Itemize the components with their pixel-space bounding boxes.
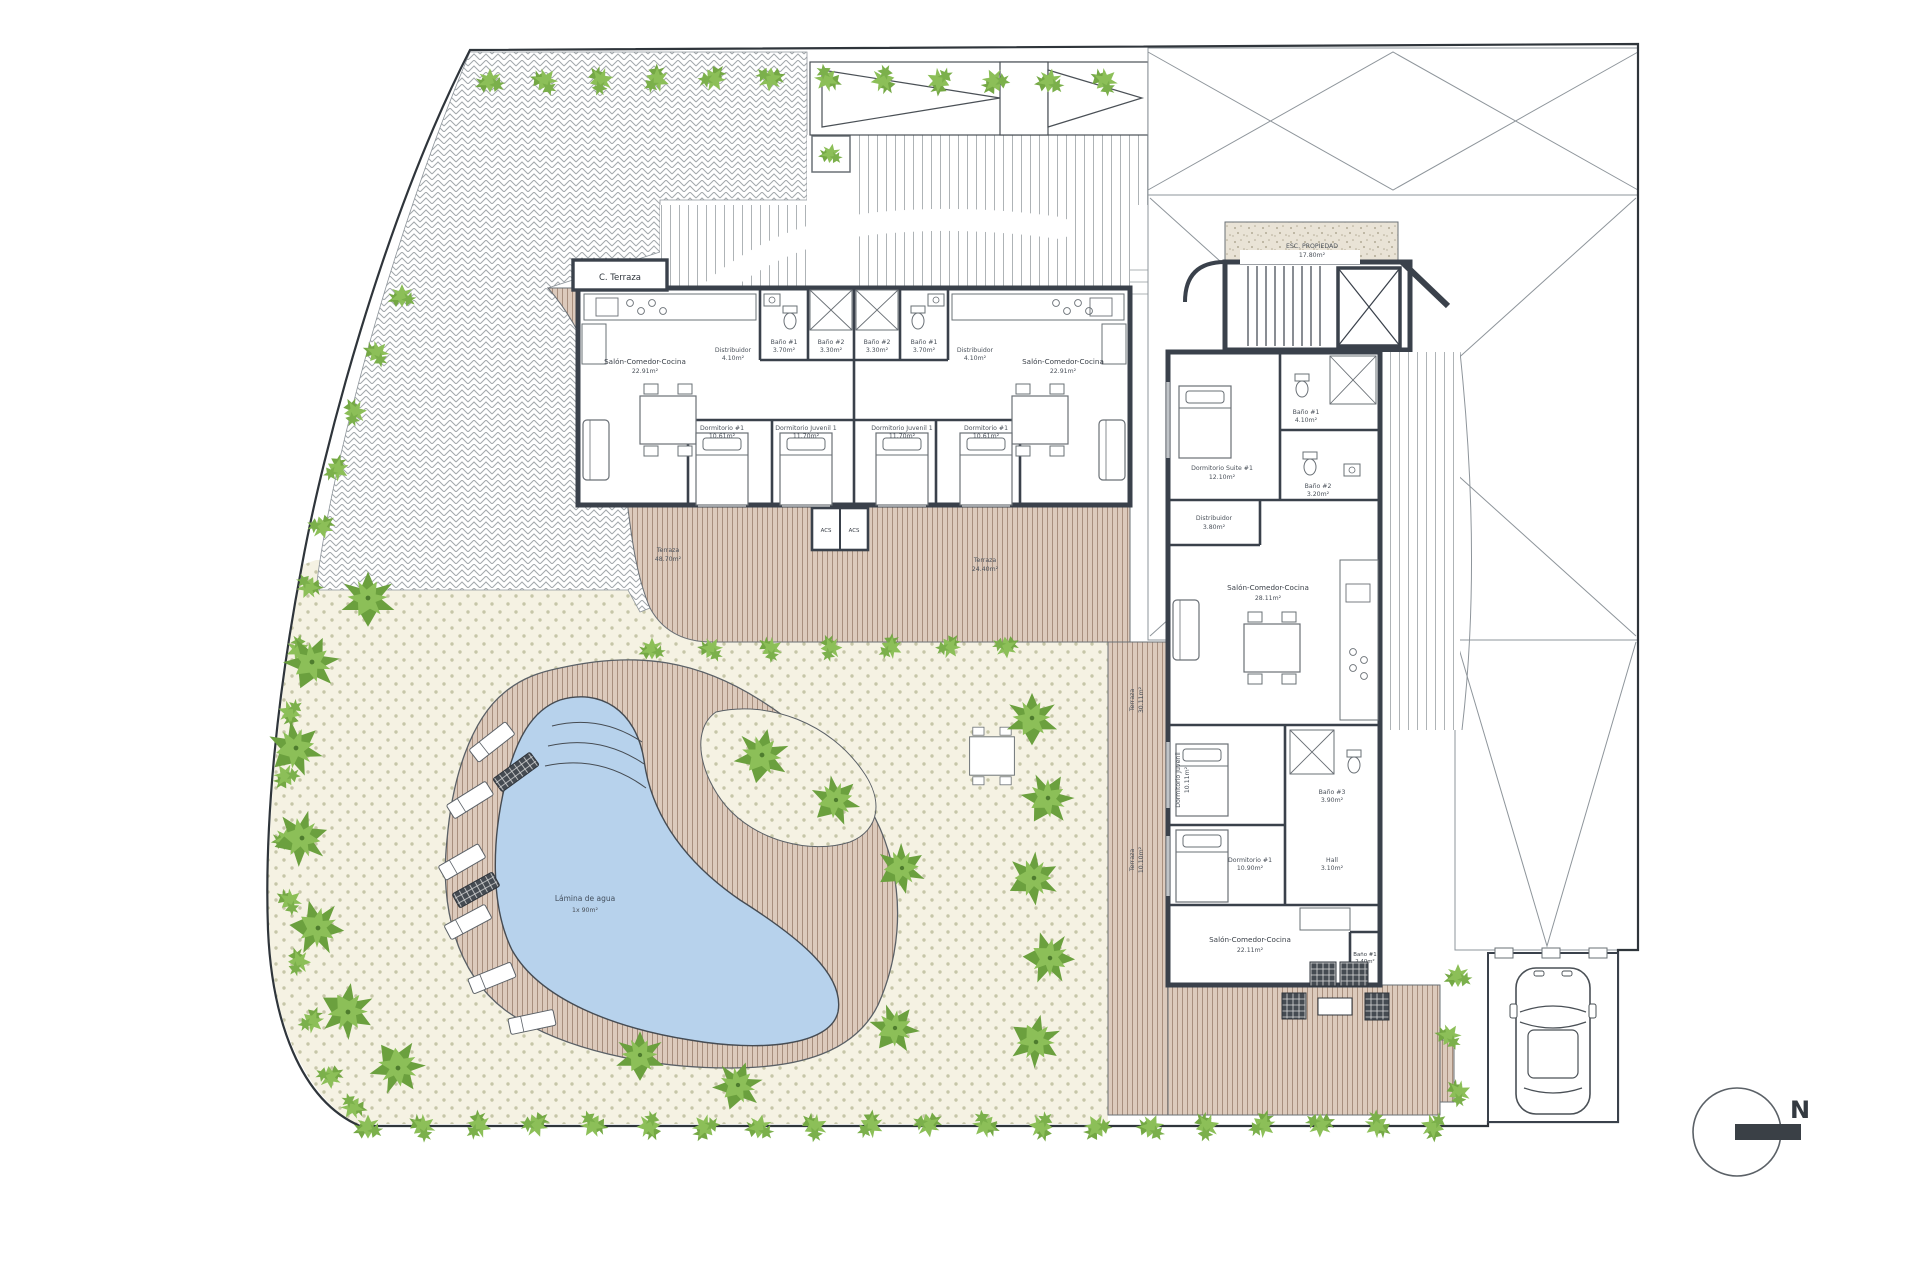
svg-text:10.90m²: 10.90m² <box>1237 865 1264 872</box>
svg-text:10.10m²: 10.10m² <box>1138 846 1145 873</box>
unit-b-salon-label: Salón-Comedor-Cocina <box>1022 357 1104 366</box>
unit-a-dorm1-label: Dormitorio #1 <box>700 425 744 432</box>
wing-bano1-label: Baño #1 <box>1293 409 1320 416</box>
site-plan-drawing: Lámina de agua 1x 90m² C. Terraza ACS <box>0 0 1920 1280</box>
unit-b-distribuidor-label: Distribuidor <box>957 347 994 354</box>
svg-text:4.10m²: 4.10m² <box>1295 417 1318 424</box>
svg-text:30.11m²: 30.11m² <box>1138 686 1145 713</box>
wing-salon2-label: Salón-Comedor-Cocina <box>1209 935 1291 944</box>
svg-text:4.10m²: 4.10m² <box>964 355 987 362</box>
svg-text:22.11m²: 22.11m² <box>1237 947 1264 954</box>
wing-bano3-label: Baño #3 <box>1319 789 1346 796</box>
unit-b-bano1-label: Baño #1 <box>911 339 938 346</box>
unit-a-bano2-label: Baño #2 <box>818 339 845 346</box>
terrace-3-label: Terraza <box>1129 689 1136 713</box>
svg-text:3.70m²: 3.70m² <box>773 347 796 354</box>
wing-dorm1-label: Dormitorio #1 <box>1228 857 1272 864</box>
svg-text:3.90m²: 3.90m² <box>1321 797 1344 804</box>
pool-label: Lámina de agua <box>555 894 615 903</box>
svg-text:3.70m²: 3.70m² <box>913 347 936 354</box>
unit-b-bano2-label: Baño #2 <box>864 339 891 346</box>
svg-text:11.70m²: 11.70m² <box>889 433 916 440</box>
wing-suite-label: Dormitorio Suite #1 <box>1191 465 1253 472</box>
wing-salon-label: Salón-Comedor-Cocina <box>1227 583 1309 592</box>
svg-text:22.91m²: 22.91m² <box>632 368 659 375</box>
unit-a-dorm2-label: Dormitorio Juvenil 1 <box>775 425 837 432</box>
unit-b-dorm1-label: Dormitorio #1 <box>964 425 1008 432</box>
terrace-4-label: Terraza <box>1129 849 1136 873</box>
c-terraza-label: C. Terraza <box>599 273 641 283</box>
wing-distribuidor-label: Distribuidor <box>1196 515 1233 522</box>
wing-hall-label: Hall <box>1326 857 1338 864</box>
pool-area-label: 1x 90m² <box>572 907 598 914</box>
svg-text:3.20m²: 3.20m² <box>1307 491 1330 498</box>
upper-apartment-block: C. Terraza ACS ACS <box>573 260 1130 550</box>
svg-text:10.61m²: 10.61m² <box>709 433 736 440</box>
svg-text:28.11m²: 28.11m² <box>1255 595 1282 602</box>
car-top-view-icon <box>1510 968 1596 1114</box>
unit-a-bano1-label: Baño #1 <box>771 339 798 346</box>
svg-text:22.91m²: 22.91m² <box>1050 368 1077 375</box>
svg-text:12.10m²: 12.10m² <box>1209 474 1236 481</box>
unit-b-dorm2-label: Dormitorio Juvenil 1 <box>871 425 933 432</box>
unit-a-distribuidor-label: Distribuidor <box>715 347 752 354</box>
terrace-2-label: Terraza <box>973 557 997 564</box>
svg-text:10.11m²: 10.11m² <box>1184 766 1191 793</box>
svg-text:11.70m²: 11.70m² <box>793 433 820 440</box>
parking-bay <box>1488 948 1618 1122</box>
terrace-1-label: Terraza <box>656 547 680 554</box>
svg-text:17.80m²: 17.80m² <box>1299 252 1326 259</box>
svg-text:10.61m²: 10.61m² <box>973 433 1000 440</box>
svg-text:3.80m²: 3.80m² <box>1203 524 1226 531</box>
acs2-label: ACS <box>849 528 860 534</box>
svg-text:4.10m²: 4.10m² <box>722 355 745 362</box>
unit-a-salon-label: Salón-Comedor-Cocina <box>604 357 686 366</box>
wing-dorm-juvenil-label: Dormitorio Juvenil <box>1175 752 1182 808</box>
north-label: N <box>1790 1096 1810 1124</box>
deck-upper2 <box>855 135 1148 205</box>
wing-side-deck <box>1380 352 1460 730</box>
svg-text:24.40m²: 24.40m² <box>972 566 999 573</box>
acs1-label: ACS <box>821 528 832 534</box>
svg-text:3.30m²: 3.30m² <box>866 347 889 354</box>
svg-text:3.30m²: 3.30m² <box>820 347 843 354</box>
svg-text:3.10m²: 3.10m² <box>1321 865 1344 872</box>
floor-plan-page: Lámina de agua 1x 90m² C. Terraza ACS <box>0 0 1920 1280</box>
wing-bano4-label: Baño #1 <box>1353 952 1376 958</box>
wing-bano2-label: Baño #2 <box>1305 483 1332 490</box>
acs-closets: ACS ACS <box>812 508 868 550</box>
svg-text:48.70m²: 48.70m² <box>655 556 682 563</box>
stair-label: ESC. PROPIEDAD <box>1286 243 1338 250</box>
